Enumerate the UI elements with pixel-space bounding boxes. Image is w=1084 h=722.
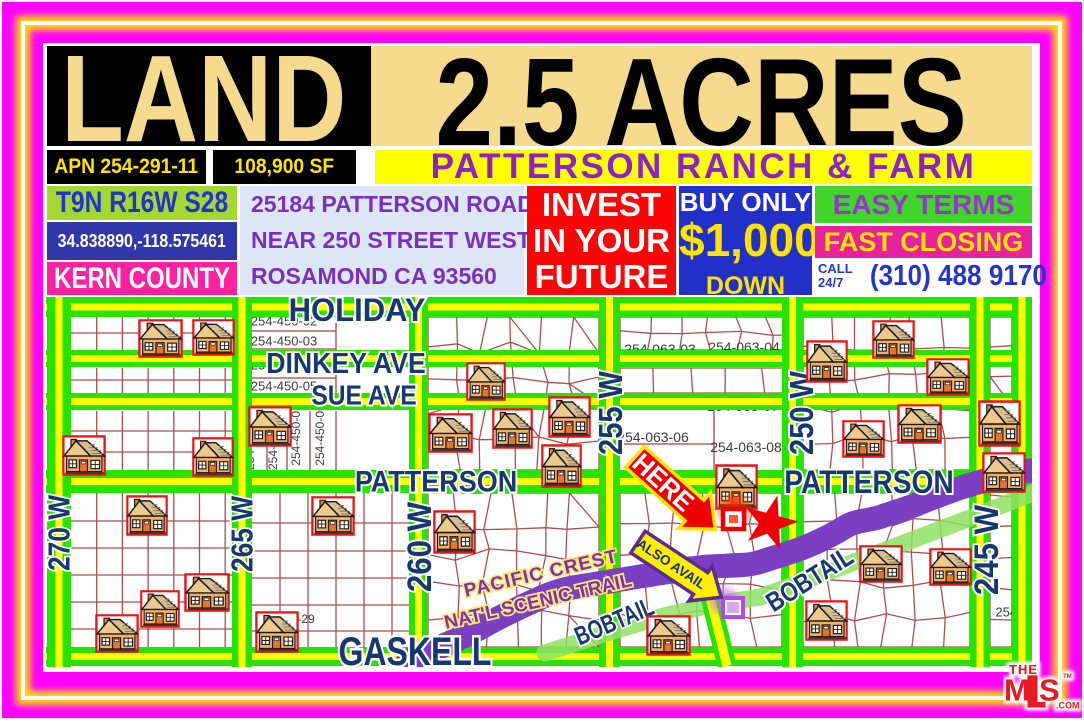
svg-text:-29: -29 xyxy=(297,612,315,626)
svg-text:HOLIDAY: HOLIDAY xyxy=(289,297,426,328)
svg-text:260 W: 260 W xyxy=(400,502,439,593)
svg-text:245 W: 245 W xyxy=(967,505,1006,596)
svg-text:254-: 254- xyxy=(266,446,280,470)
svg-text:TM: TM xyxy=(1063,674,1072,680)
svg-text:250 W: 250 W xyxy=(783,370,820,455)
svg-text:254-450-05: 254-450-05 xyxy=(251,379,318,394)
svg-text:THE: THE xyxy=(1009,662,1038,677)
svg-text:254-063-08: 254-063-08 xyxy=(710,439,782,455)
svg-text:M: M xyxy=(1004,673,1030,708)
svg-text:DINKEY AVE: DINKEY AVE xyxy=(266,347,426,379)
svg-text:PATTERSON: PATTERSON xyxy=(355,465,517,499)
svg-text:270 W: 270 W xyxy=(46,494,77,571)
svg-text:SUE AVE: SUE AVE xyxy=(311,379,416,411)
svg-text:254-450-06: 254-450-06 xyxy=(313,404,327,466)
svg-text:.COM: .COM xyxy=(1056,701,1080,711)
svg-text:265 W: 265 W xyxy=(226,495,260,572)
svg-text:255 W: 255 W xyxy=(592,370,629,455)
svg-text:GASKELL: GASKELL xyxy=(339,628,492,667)
svg-text:PATTERSON: PATTERSON xyxy=(784,465,953,500)
